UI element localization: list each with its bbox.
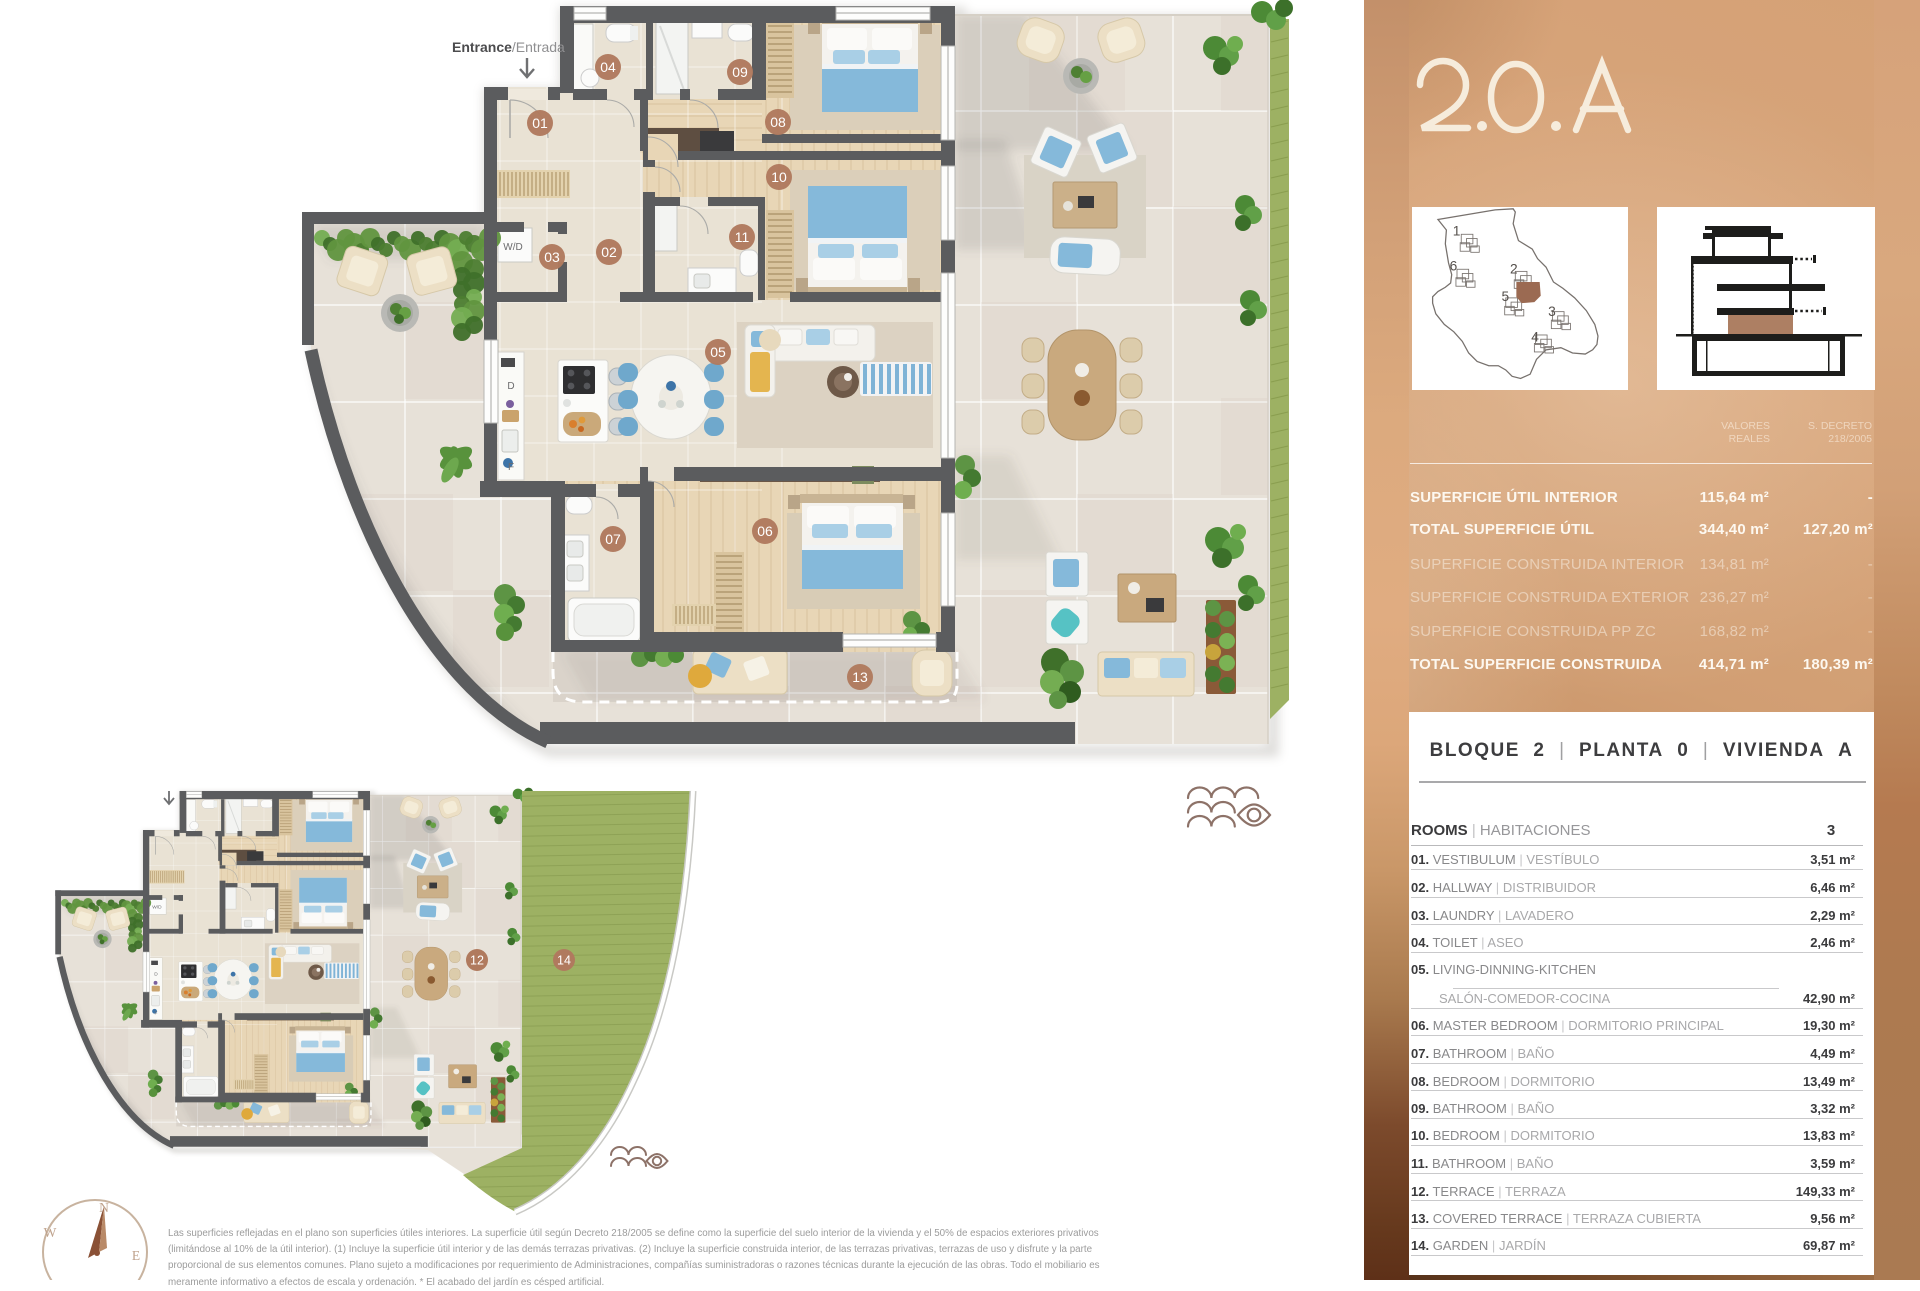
svg-text:06: 06 xyxy=(757,523,773,539)
svg-text:11: 11 xyxy=(735,229,750,245)
svg-text:01: 01 xyxy=(532,115,548,131)
svg-text:05: 05 xyxy=(710,344,726,360)
svg-text:12: 12 xyxy=(470,954,484,968)
svg-text:6: 6 xyxy=(1450,258,1458,273)
svg-text:W: W xyxy=(44,1225,57,1240)
svg-text:1: 1 xyxy=(1453,223,1461,238)
svg-text:02: 02 xyxy=(601,244,617,260)
svg-text:5: 5 xyxy=(1502,289,1510,304)
svg-text:W/D: W/D xyxy=(503,242,522,253)
svg-text:04: 04 xyxy=(600,59,616,75)
svg-text:E: E xyxy=(132,1248,140,1263)
svg-text:D: D xyxy=(507,381,514,392)
svg-text:3: 3 xyxy=(1548,304,1556,319)
svg-text:03: 03 xyxy=(544,249,560,265)
svg-text:N: N xyxy=(99,1200,109,1215)
svg-text:4: 4 xyxy=(1531,329,1539,344)
svg-text:Entrance/Entrada: Entrance/Entrada xyxy=(452,39,565,55)
svg-text:14: 14 xyxy=(557,954,571,968)
svg-text:07: 07 xyxy=(605,531,621,547)
svg-text:13: 13 xyxy=(852,669,868,685)
svg-text:09: 09 xyxy=(732,64,748,80)
svg-text:10: 10 xyxy=(771,169,787,185)
svg-text:2: 2 xyxy=(1510,261,1518,276)
svg-text:F: F xyxy=(508,462,514,473)
svg-text:08: 08 xyxy=(770,114,786,130)
